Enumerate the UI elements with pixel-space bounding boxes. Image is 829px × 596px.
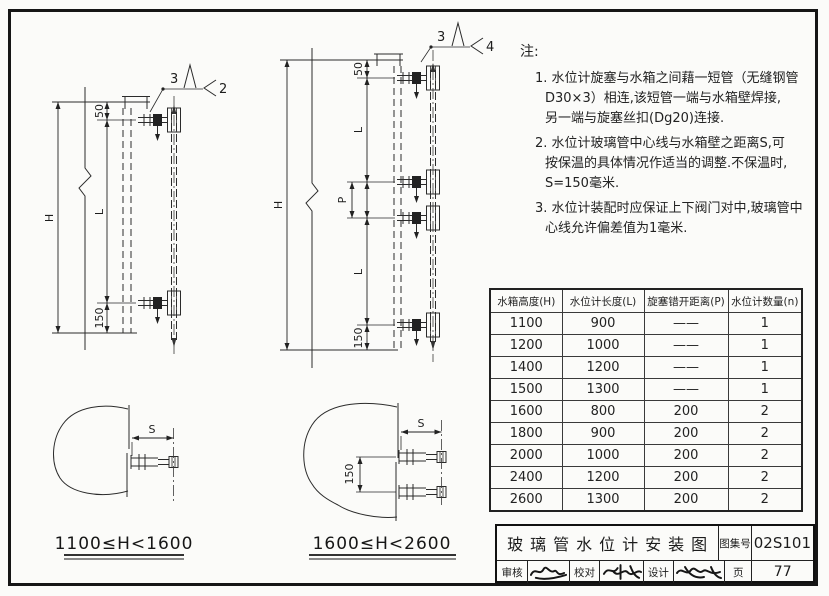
table-row: 240012002002 <box>490 467 802 489</box>
cock-fitting <box>131 454 178 470</box>
plan-view-double: S 150 1600≤H<2600 <box>304 403 456 559</box>
title-block-row-2: 审核 校对 设计 页 77 <box>497 561 813 583</box>
title-block-row-1: 玻璃管水位计安装图 图集号 02S101 <box>497 526 813 561</box>
notes-block: 注: 1. 水位计旋塞与水箱之间藉一短管（无缝钢管 D30×3）相连,该短管一端… <box>516 42 816 244</box>
dim-s-label: S <box>149 423 156 436</box>
dim-150-label: 150 <box>343 464 356 485</box>
dim-l-label: L <box>93 208 106 215</box>
tank-wall-line <box>79 87 91 350</box>
plan-caption: 1100≤H<1600 <box>55 534 194 554</box>
note-line: 1. 水位计旋塞与水箱之间藉一短管（无缝钢管 <box>535 69 816 89</box>
note-2: 2. 水位计玻璃管中心线与水箱壁之距离S,可 按保温的具体情况作适当的调整.不保… <box>516 134 816 194</box>
callout-flag <box>452 23 464 46</box>
dim-h-label: H <box>43 214 56 222</box>
dim-h-label: H <box>272 201 285 209</box>
dim-150-label: 150 <box>93 308 106 329</box>
dim-s-label: S <box>418 417 425 430</box>
gauge-spec-table: 水箱高度(H) 水位计长度(L) 旋塞错开距离(P) 水位计数量(n) 1100… <box>489 288 803 512</box>
designer-signature <box>674 561 725 583</box>
table-row: 15001300——1 <box>490 379 802 401</box>
note-3: 3. 水位计装配时应保证上下阀门对中,玻璃管中 心线允许偏差值为1毫米. <box>516 199 816 239</box>
dim-p-label: P <box>336 196 349 203</box>
elevation-single-gauge: H 50 L 150 3 2 <box>43 65 227 356</box>
tank-top-plate <box>122 97 150 110</box>
table-row: 18009002002 <box>490 423 802 445</box>
tank-wall-hidden-lines <box>123 108 131 333</box>
cock-fitting-lower <box>399 484 446 500</box>
col-cock-offset: 旋塞错开距离(P) <box>644 289 728 313</box>
drawing-sheet: H 50 L 150 3 2 <box>0 0 829 596</box>
cock-fitting-upper <box>399 449 446 465</box>
note-line: D30×3）相连,该短管一端与水箱壁焊接, <box>545 89 816 109</box>
table-row: 12001000——1 <box>490 335 802 357</box>
table-header-row: 水箱高度(H) 水位计长度(L) 旋塞错开距离(P) 水位计数量(n) <box>490 289 802 313</box>
dim-50-label: 50 <box>352 62 365 76</box>
callout-detail-ref: 4 <box>486 40 494 55</box>
title-block: 玻璃管水位计安装图 图集号 02S101 审核 校对 设计 <box>495 524 815 583</box>
callout-arrow <box>471 38 483 54</box>
callout-detail-ref: 2 <box>219 82 227 97</box>
page-label: 页 <box>725 561 752 583</box>
reviewer-signature <box>528 561 570 583</box>
signature-scribble <box>600 562 643 582</box>
table-row: 1100900——1 <box>490 313 802 335</box>
atlas-number-label: 图集号 <box>719 526 752 560</box>
dim-l-upper-label: L <box>352 126 365 133</box>
dim-50-label: 50 <box>93 104 106 118</box>
notes-label: 注: <box>520 42 816 62</box>
note-line: 2. 水位计玻璃管中心线与水箱壁之距离S,可 <box>535 134 816 154</box>
callout-item-number: 3 <box>437 30 445 45</box>
note-1: 1. 水位计旋塞与水箱之间藉一短管（无缝钢管 D30×3）相连,该短管一端与水箱… <box>516 69 816 129</box>
tank-wall-hidden-lines <box>394 66 401 350</box>
note-line: S=150毫米. <box>545 174 816 194</box>
tank-plan-outline <box>304 403 397 517</box>
col-gauge-count: 水位计数量(n) <box>728 289 802 313</box>
signature-scribble <box>674 562 724 582</box>
callout-flag <box>184 65 196 88</box>
checker-label: 校对 <box>570 561 599 583</box>
plan-caption: 1600≤H<2600 <box>313 534 452 554</box>
dim-l-lower-label: L <box>352 268 365 275</box>
callout-leader-dot <box>161 87 164 90</box>
extension-lines <box>356 436 401 492</box>
elevation-double-gauge: H 50 L P L 150 3 4 <box>272 23 494 368</box>
table-row: 200010002002 <box>490 445 802 467</box>
break-lines <box>127 405 129 497</box>
table-row: 14001200——1 <box>490 357 802 379</box>
extension-lines <box>347 78 395 325</box>
designer-label: 设计 <box>644 561 674 583</box>
note-line: 心线允许偏差值为1毫米. <box>545 219 816 239</box>
col-gauge-length: 水位计长度(L) <box>562 289 644 313</box>
callout-leader-dot <box>429 45 432 48</box>
callout-item-number: 3 <box>170 72 178 87</box>
callout-leader <box>421 47 470 62</box>
tank-plan-outline <box>54 406 128 494</box>
callout-arrow <box>204 80 216 96</box>
break-lines <box>396 403 398 521</box>
col-tank-height: 水箱高度(H) <box>490 289 562 313</box>
note-line: 按保温的具体情况作适当的调整.不保温时, <box>545 154 816 174</box>
table-row: 16008002002 <box>490 401 802 423</box>
table-row: 260013002002 <box>490 489 802 512</box>
note-line: 3. 水位计装配时应保证上下阀门对中,玻璃管中 <box>535 199 816 219</box>
atlas-number: 02S101 <box>752 526 813 560</box>
page-number: 77 <box>752 561 813 583</box>
drawing-title: 玻璃管水位计安装图 <box>497 526 719 560</box>
plan-view-single: S 1100≤H<1600 <box>54 405 194 559</box>
note-line: 另一端与旋塞丝扣(Dg20)连接. <box>545 109 816 129</box>
checker-signature <box>600 561 644 583</box>
reviewer-label: 审核 <box>497 561 528 583</box>
dim-150-label: 150 <box>352 328 365 349</box>
tank-wall-line <box>306 48 318 368</box>
signature-scribble <box>528 562 569 582</box>
